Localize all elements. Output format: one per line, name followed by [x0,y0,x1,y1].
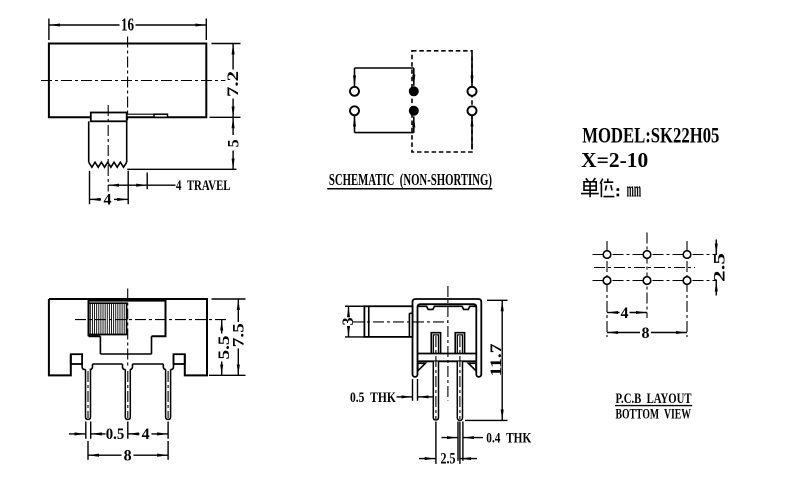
svg-text:3: 3 [340,318,357,326]
svg-text:7.5: 7.5 [231,323,248,347]
svg-text:5: 5 [226,139,243,147]
svg-text:4 TRAVEL: 4 TRAVEL [176,178,231,194]
svg-text:2.5: 2.5 [441,451,456,468]
svg-text:4: 4 [621,305,629,322]
svg-text:4: 4 [142,426,150,443]
svg-text:8: 8 [124,448,132,465]
svg-text:X=2-10: X=2-10 [581,148,648,172]
svg-text:0.5: 0.5 [106,426,125,443]
svg-text:0.5 THK: 0.5 THK [350,390,396,406]
svg-text:7.2: 7.2 [225,71,242,97]
svg-text:8: 8 [642,325,650,342]
svg-text:P.C.B LAYOUT: P.C.B LAYOUT [616,391,692,407]
svg-text:BOTTOM VIEW: BOTTOM VIEW [616,407,692,423]
svg-text:SCHEMATIC (NON-SHORTING): SCHEMATIC (NON-SHORTING) [329,170,492,189]
svg-text:16: 16 [121,15,134,35]
svg-text:4: 4 [104,192,112,209]
svg-text:2.5: 2.5 [712,253,729,282]
svg-text:MODEL:SK22H05: MODEL:SK22H05 [582,123,719,148]
svg-text:0.4 THK: 0.4 THK [486,431,531,447]
svg-text:mm: mm [627,176,642,201]
svg-text:11.7: 11.7 [488,344,505,377]
